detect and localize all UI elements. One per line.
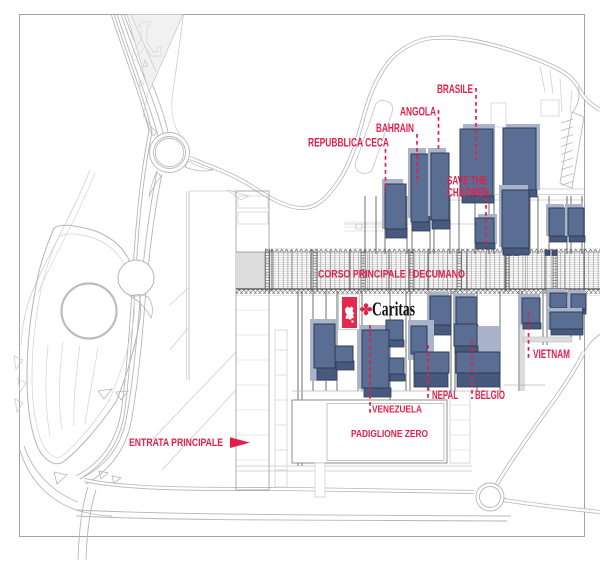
svg-text:PADIGLIONE ZERO: PADIGLIONE ZERO <box>351 428 428 440</box>
svg-text:REPUBBLICA CECA: REPUBBLICA CECA <box>308 138 389 150</box>
svg-text:BRASILE: BRASILE <box>437 84 473 96</box>
svg-text:ENTRATA PRINCIPALE: ENTRATA PRINCIPALE <box>129 437 223 449</box>
svg-text:Caritas: Caritas <box>372 299 415 321</box>
svg-text:VIETNAM: VIETNAM <box>533 349 570 361</box>
svg-text:VENEZUELA: VENEZUELA <box>372 404 422 416</box>
svg-text:NEPAL: NEPAL <box>432 390 458 402</box>
svg-text:CORSO PRINCIPALE / DECUMANO: CORSO PRINCIPALE / DECUMANO <box>318 269 465 281</box>
svg-text:CHILDREN: CHILDREN <box>447 188 489 200</box>
svg-text:BAHRAIN: BAHRAIN <box>376 123 414 135</box>
svg-text:SAVE THE: SAVE THE <box>447 176 487 188</box>
svg-text:BELGIO: BELGIO <box>475 390 505 402</box>
svg-text:ANGOLA: ANGOLA <box>400 107 436 119</box>
